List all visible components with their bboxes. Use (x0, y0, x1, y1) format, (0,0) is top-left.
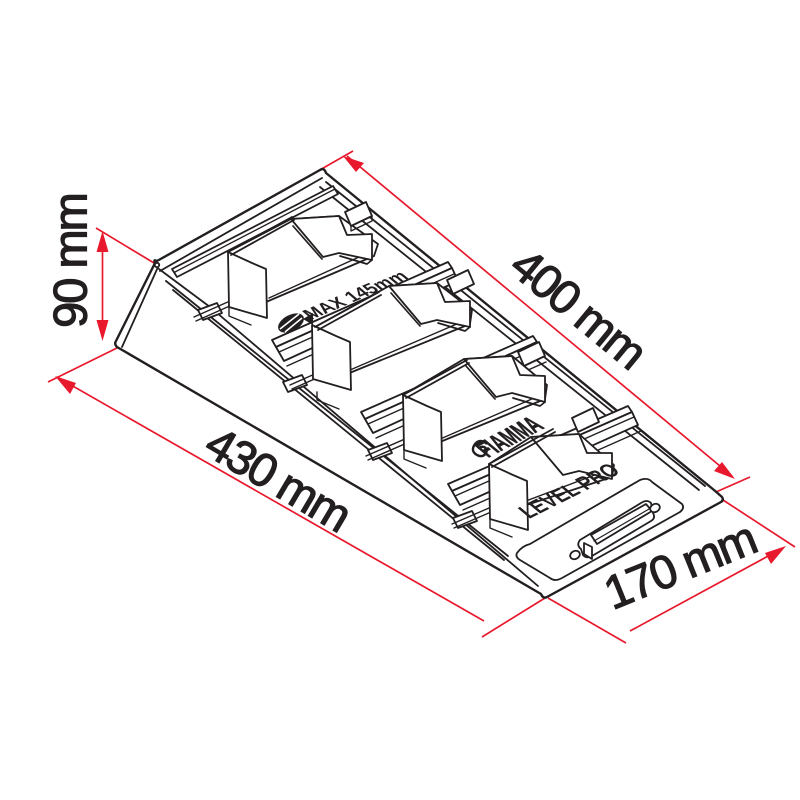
svg-text:90 mm: 90 mm (43, 194, 96, 328)
